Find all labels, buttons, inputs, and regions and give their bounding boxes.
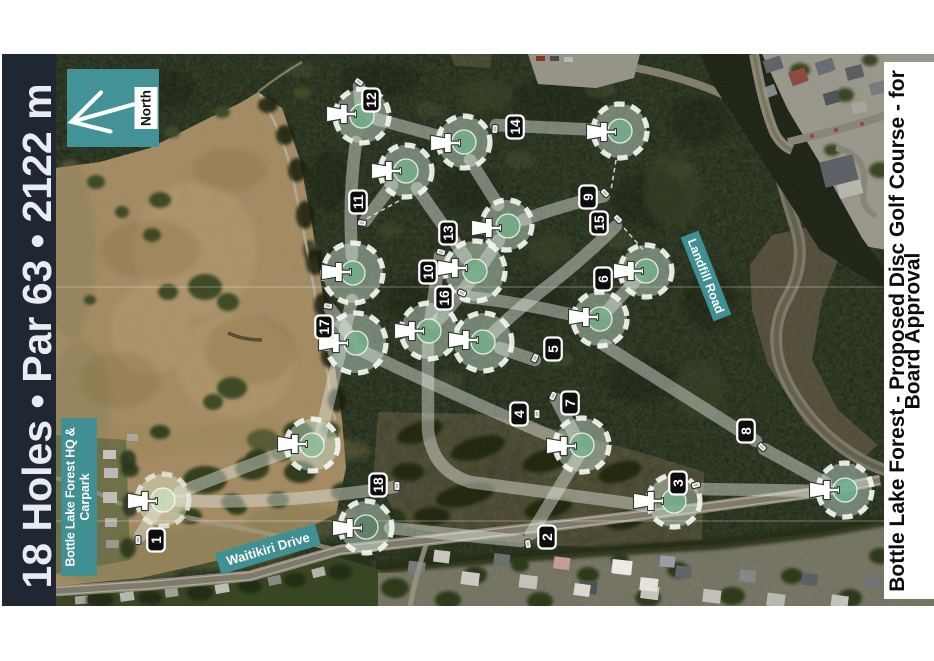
svg-text:18: 18: [371, 477, 386, 493]
svg-text:16: 16: [437, 290, 452, 306]
svg-text:10: 10: [421, 264, 436, 280]
svg-text:18 Holes • Par 63 • 2122 m: 18 Holes • Par 63 • 2122 m: [14, 83, 60, 588]
svg-text:11: 11: [351, 194, 366, 209]
svg-text:4: 4: [512, 410, 527, 418]
svg-text:17: 17: [317, 319, 332, 335]
svg-text:5: 5: [546, 345, 561, 353]
svg-text:Board Approval: Board Approval: [902, 253, 925, 410]
svg-text:13: 13: [441, 225, 456, 241]
svg-text:14: 14: [508, 119, 523, 135]
svg-text:2: 2: [540, 533, 555, 541]
svg-text:Bottle Lake Forest HQ &: Bottle Lake Forest HQ &: [64, 427, 78, 566]
svg-text:9: 9: [581, 193, 596, 201]
svg-text:Carpark: Carpark: [78, 473, 92, 520]
svg-text:7: 7: [563, 399, 578, 407]
svg-text:6: 6: [596, 275, 611, 283]
svg-text:1: 1: [149, 536, 164, 544]
svg-text:15: 15: [592, 215, 607, 231]
svg-text:3: 3: [671, 479, 686, 487]
svg-text:8: 8: [739, 427, 754, 435]
svg-text:North: North: [139, 90, 154, 126]
svg-text:12: 12: [364, 92, 379, 108]
